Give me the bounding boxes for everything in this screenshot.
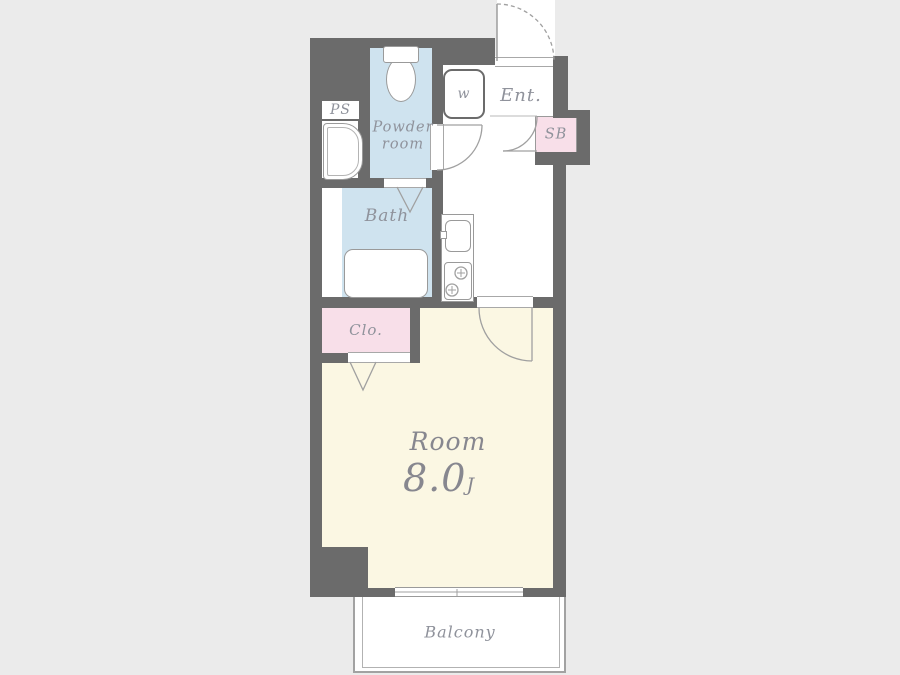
stove-burner-cross <box>457 269 465 277</box>
shoe-box-label: SB <box>545 126 568 143</box>
balcony-label: Balcony <box>424 622 495 641</box>
entrance-label: Ent. <box>500 85 542 107</box>
entrance-door-swing-arc <box>497 4 554 61</box>
plan-linework <box>0 0 900 675</box>
powder-room-door-swing-arc <box>437 125 482 170</box>
powder-room-label-line2: room <box>372 137 433 154</box>
room-door-swing-arc <box>479 308 532 361</box>
main-room-area-unit: J <box>466 474 475 496</box>
powder-room-label: Powder room <box>372 120 433 155</box>
bath-label: Bath <box>365 206 409 226</box>
closet-label: Clo. <box>349 321 383 339</box>
hall-door-swing-arc <box>503 117 537 151</box>
stove-burner-cross <box>448 286 456 294</box>
floor-plan: PS w Powder room Ent. SB Bat <box>0 0 900 675</box>
powder-room-label-line1: Powder <box>372 120 433 137</box>
main-room-size: 8.0J <box>403 456 475 502</box>
closet-folding-door-mark <box>350 362 376 390</box>
main-room-label: Room <box>410 427 487 457</box>
main-room-area-value: 8.0 <box>403 456 466 500</box>
